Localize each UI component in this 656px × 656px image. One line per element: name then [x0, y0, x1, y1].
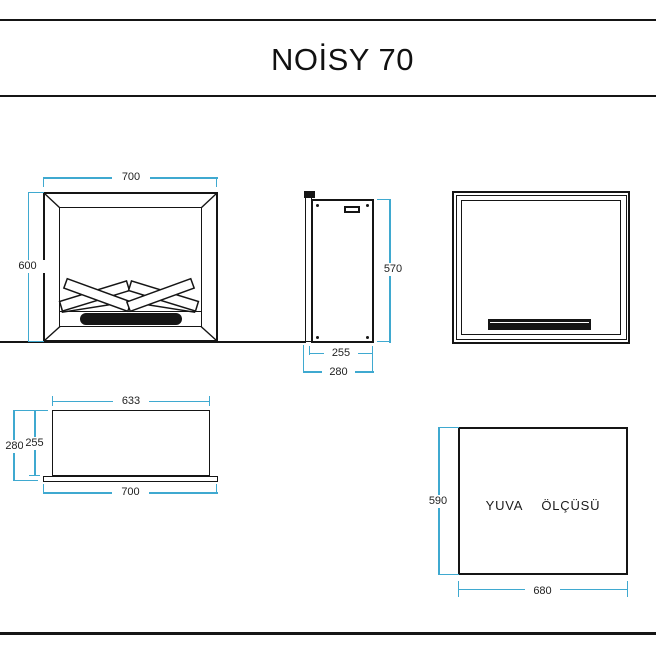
top-body	[52, 410, 210, 476]
sheet-bottom-rule	[0, 632, 656, 635]
niche-width-dim-label: 680	[525, 585, 560, 598]
top-body-depth-dim-label: 255	[23, 437, 46, 450]
front-height-dim-tick-top	[28, 192, 44, 194]
side-height-dim-label: 570	[377, 263, 410, 276]
burner-tray	[80, 313, 182, 325]
niche-width-dim-tick-left	[458, 581, 460, 597]
screw-icon	[366, 204, 369, 207]
side-height-dim-tick-top	[377, 199, 391, 201]
top-body-depth-dim-tick-bottom	[29, 475, 40, 477]
side-height-dim-tick-bottom	[377, 341, 391, 343]
title-bottom-rule	[0, 95, 656, 97]
page-title: NOİSY 70	[0, 43, 656, 77]
top-depth-dim-tick-top	[13, 410, 48, 412]
top-total-width-dim-tick-left	[43, 484, 45, 494]
front-height-dim-tick-bottom	[28, 341, 44, 343]
niche-width-dim-tick-right	[627, 581, 629, 597]
fire-logs	[60, 277, 202, 312]
screw-icon	[366, 336, 369, 339]
top-front-flange	[43, 476, 218, 482]
side-flange-top-notch	[304, 191, 315, 198]
side-body	[311, 199, 374, 343]
side-body-depth-dim-tick-left	[309, 346, 311, 355]
top-total-depth-dim-tick-bottom	[13, 480, 38, 482]
niche-height-dim-tick-bottom	[438, 574, 459, 576]
front-width-dim-tick-left	[43, 177, 45, 187]
front-width-dim-tick-right	[216, 177, 218, 187]
niche-height-dim-label: 590	[421, 495, 455, 508]
ground-line	[0, 341, 306, 343]
side-body-depth-dim-label: 255	[324, 347, 358, 360]
front-height-dim-label: 600	[10, 260, 45, 273]
screw-icon	[316, 204, 319, 207]
drawing-page: NOİSY 70 700	[0, 0, 656, 656]
back-bottom-bar-groove	[490, 322, 589, 324]
back-bottom-bar	[488, 319, 591, 330]
screw-icon	[316, 336, 319, 339]
back-inner-frame	[461, 200, 621, 335]
top-body-width-dim-tick-left	[52, 396, 54, 406]
top-total-width-dim-label: 700	[112, 486, 149, 499]
niche-caption: YUVA ÖLÇÜSÜ	[458, 498, 628, 513]
side-total-depth-dim-label: 280	[322, 366, 355, 379]
front-width-dim-label: 700	[112, 171, 150, 184]
side-total-depth-dim-tick-left	[303, 345, 305, 374]
sheet-top-rule	[0, 19, 656, 21]
side-vent-slot	[344, 206, 360, 213]
top-total-width-dim-tick-right	[216, 484, 218, 494]
side-depth-dim-tick-right	[372, 346, 374, 374]
niche-height-dim-tick-top	[438, 427, 459, 429]
top-body-width-dim-label: 633	[113, 395, 149, 408]
top-body-width-dim-tick-right	[209, 396, 211, 406]
